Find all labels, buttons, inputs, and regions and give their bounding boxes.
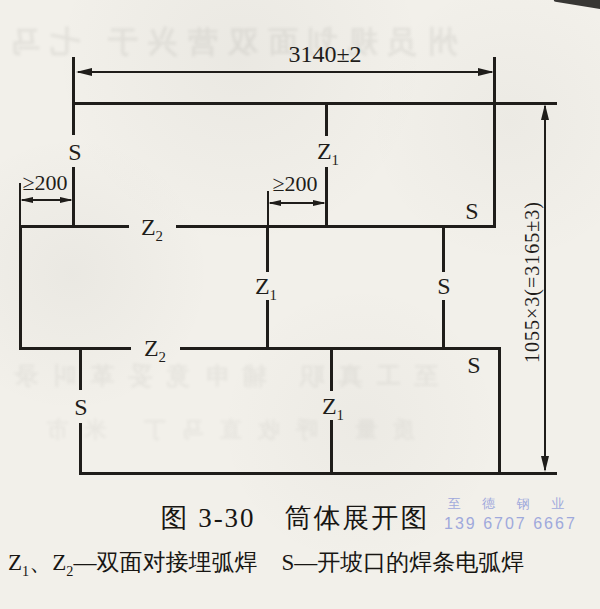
stagger-left-extension-line [19,183,21,225]
label-subscript: 1 [270,287,277,303]
label-text: Z [322,393,337,419]
arrowhead-left-icon [268,200,281,206]
plate-top-edge [72,102,557,105]
course2-left-edge [19,225,22,349]
weld-label-s-course3-left: S [74,395,87,419]
label-subscript: 1 [337,407,344,423]
label-subscript: 2 [156,228,163,244]
weld-label-s-course1-left: S [68,140,81,164]
label-text: S [465,198,478,224]
circ-seam1-right-segment [176,225,496,228]
plate-bottom-edge [79,472,557,475]
arrowhead-right-icon [478,68,494,76]
weld-label-s-course1-right: S [465,199,478,223]
course2-z1-seam-upper [266,228,269,272]
legend-s: S—开坡口的焊条电弧焊 [281,550,524,575]
scan-smudge-mark [553,0,600,10]
circ-seam1-left-segment [19,225,129,228]
weld-label-z1-course3: Z1 [322,394,344,418]
arrowhead-right-icon [60,197,73,203]
weld-label-z2-seam1: Z2 [141,215,163,239]
width-dimension-line [78,71,492,73]
course1-z1-seam-upper [325,102,328,136]
course1-left-seam-upper [72,57,75,135]
weld-label-s-course2-right: S [437,274,450,298]
label-subscript: 2 [159,349,166,365]
weld-label-z1-course1: Z1 [317,139,339,163]
legend-z-description: —双面对接埋弧焊 [73,550,257,575]
arrowhead-left-icon [20,197,33,203]
label-text: Z [52,550,66,575]
course3-left-seam-lower [79,423,82,474]
course2-z1-seam-lower [266,300,269,349]
arrowhead-left-icon [76,68,92,76]
course2-right-seam-upper [442,228,445,272]
legend-z1: Z1 [8,550,29,575]
label-text: Z [141,214,156,240]
course1-z1-seam-lower [325,167,328,227]
label-text: S [68,139,81,165]
label-text: Z [255,273,270,299]
circ-seam2-left-segment [19,347,131,350]
label-text: S [74,394,87,420]
bleed-through-text: 州员规划面双营兴于 七马 [0,22,458,63]
stagger-left-dimension-text: ≥200 [22,172,67,194]
stagger-middle-dimension-text: ≥200 [272,173,317,195]
height-dimension-text: 1055×3(=3165±3) [521,201,544,363]
course3-z1-seam-upper [330,349,333,391]
course3-right-edge [498,347,501,474]
weld-label-z1-course2: Z1 [255,274,277,298]
watermark-phone: 139 6707 6667 [444,515,577,533]
course2-right-seam-lower [442,300,445,349]
arrowhead-up-icon [541,104,549,120]
arrowhead-right-icon [313,200,326,206]
course3-left-seam-upper [79,349,82,390]
stagger-middle-extension-line [267,191,269,225]
circ-seam2-right-segment [180,347,501,350]
legend-separator: 、 [29,550,52,575]
figure-caption: 图 3-30 筒体展开图 [130,500,460,536]
label-text: Z [8,550,22,575]
bleed-through-text: 至工真职 辅申竟妥革叫录 [0,360,438,392]
bleed-through-text: 质量 呼收直马丁 米市 [30,415,415,445]
figure-legend: Z1、Z2—双面对接埋弧焊S—开坡口的焊条电弧焊 [8,548,592,578]
legend-s-description: —开坡口的焊条电弧焊 [294,550,524,575]
watermark-company: 至 德 钢 业 [444,495,577,513]
label-text: S [281,550,294,575]
scanned-figure-page: 州员规划面双营兴于 七马 至工真职 辅申竟妥革叫录 质量 呼收直马丁 米市 31… [0,0,600,609]
watermark: 至 德 钢 业 139 6707 6667 [444,495,577,533]
height-dimension-line [544,106,546,470]
label-subscript: 1 [332,152,339,168]
label-text: S [437,273,450,299]
legend-z2: Z2 [52,550,73,575]
course3-z1-seam-lower [330,420,333,474]
label-text: S [467,352,480,378]
course1-right-edge [493,57,496,227]
label-text: Z [317,138,332,164]
weld-label-s-course3-right: S [467,353,480,377]
arrowhead-down-icon [541,456,549,472]
label-text: Z [144,335,159,361]
width-dimension-text: 3140±2 [288,42,361,66]
weld-label-z2-seam2: Z2 [144,336,166,360]
